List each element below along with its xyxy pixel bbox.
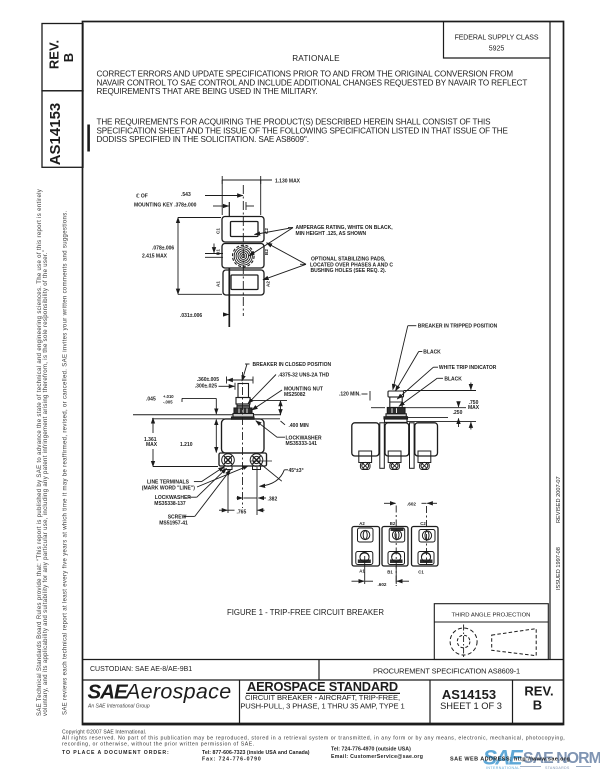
svg-text:TO PLACE A DOCUMENT ORDER:: TO PLACE A DOCUMENT ORDER: <box>62 750 170 756</box>
svg-text:B: B <box>61 53 76 62</box>
svg-text:voluntary, and its applicabili: voluntary, and its applicability and sui… <box>43 250 49 716</box>
svg-text:SAE: SAE <box>88 681 129 704</box>
svg-text:SHEET 1 OF 3: SHEET 1 OF 3 <box>440 701 502 711</box>
svg-text:AEROSPACE STANDARD: AEROSPACE STANDARD <box>247 679 398 694</box>
svg-text:C1: C1 <box>418 570 424 575</box>
svg-text:.602: .602 <box>378 582 387 587</box>
svg-text:SPECIFICATION SHEET AND THE IS: SPECIFICATION SHEET AND THE ISSUE OF THE… <box>97 126 509 135</box>
svg-text:RATIONALE: RATIONALE <box>292 54 340 63</box>
svg-text:B2: B2 <box>390 521 396 526</box>
svg-text:.078±.006: .078±.006 <box>152 246 174 252</box>
svg-text:Fax: 724-776-0790: Fax: 724-776-0790 <box>202 757 262 763</box>
svg-text:.765: .765 <box>237 510 247 516</box>
svg-text:BREAKER IN CLOSED POSITION: BREAKER IN CLOSED POSITION <box>253 362 332 368</box>
svg-text:MS35333-141: MS35333-141 <box>286 441 318 447</box>
svg-text:A2: A2 <box>266 281 271 287</box>
svg-text:.360±.005: .360±.005 <box>197 377 219 383</box>
svg-text:.400 MIN: .400 MIN <box>289 423 310 429</box>
svg-text:MAX: MAX <box>468 405 480 411</box>
svg-text:DODISS SPECIFIED IN THE SOLICI: DODISS SPECIFIED IN THE SOLICITATION. SA… <box>97 135 309 144</box>
svg-text:.120 MIN.: .120 MIN. <box>339 392 361 398</box>
svg-text:ℂ OF: ℂ OF <box>136 194 148 200</box>
svg-text:A1: A1 <box>359 569 365 574</box>
svg-text:MAX: MAX <box>146 442 158 448</box>
svg-text:MS35338-137: MS35338-137 <box>154 501 186 507</box>
svg-text:BUSHING HOLES (SEE REQ. 2).: BUSHING HOLES (SEE REQ. 2). <box>311 268 387 274</box>
svg-text:SAE reviews each technical rep: SAE reviews each technical report at lea… <box>63 210 69 715</box>
svg-text:5925: 5925 <box>489 46 505 53</box>
svg-text:REV.: REV. <box>524 684 553 699</box>
svg-text:THIRD ANGLE PROJECTION: THIRD ANGLE PROJECTION <box>452 613 531 619</box>
svg-text:MOUNTING KEY .378±.000: MOUNTING KEY .378±.000 <box>134 203 197 209</box>
svg-text:.300±.025: .300±.025 <box>195 384 217 390</box>
svg-text:Aerospace: Aerospace <box>124 680 232 704</box>
svg-text:REQUIREMENTS THAT ARE BEING US: REQUIREMENTS THAT ARE BEING USED IN THE … <box>97 87 318 96</box>
svg-text:An SAE International Group: An SAE International Group <box>87 704 150 710</box>
svg-text:1.130 MAX: 1.130 MAX <box>275 179 301 185</box>
svg-text:CORRECT ERRORS AND UPDATE SPEC: CORRECT ERRORS AND UPDATE SPECIFICATIONS… <box>97 70 514 79</box>
svg-text:.031±.006: .031±.006 <box>180 313 202 319</box>
svg-text:PROCUREMENT SPECIFICATION AS86: PROCUREMENT SPECIFICATION AS8609-1 <box>373 667 520 676</box>
svg-text:THE REQUIREMENTS FOR ACQUIRING: THE REQUIREMENTS FOR ACQUIRING THE PRODU… <box>97 118 492 127</box>
svg-text:.045: .045 <box>146 397 156 403</box>
svg-text:Tel: 877-606-7323 (inside USA: Tel: 877-606-7323 (inside USA and Canada… <box>202 750 310 756</box>
svg-text:Email: CustomerService@sae.org: Email: CustomerService@sae.org <box>331 754 423 760</box>
svg-text:SAE WEB ADDRESS: http://www.sa: SAE WEB ADDRESS: http://www.sae.org <box>450 757 570 763</box>
svg-text:recording, or otherwise, witho: recording, or otherwise, without the pri… <box>62 742 255 748</box>
svg-text:REVISED 2007-07: REVISED 2007-07 <box>556 476 562 523</box>
svg-text:.382: .382 <box>268 497 278 503</box>
svg-text:A1: A1 <box>216 281 221 287</box>
svg-text:B1: B1 <box>216 249 221 255</box>
svg-text:+.010: +.010 <box>163 394 174 399</box>
svg-text:C1: C1 <box>216 228 221 234</box>
svg-text:.543: .543 <box>181 192 191 198</box>
svg-text:PUSH-PULL, 3 PHASE, 1 THRU 35: PUSH-PULL, 3 PHASE, 1 THRU 35 AMP, TYPE … <box>240 702 404 711</box>
svg-text:REV.: REV. <box>47 40 62 69</box>
svg-text:FIGURE 1 - TRIP-FREE CIRCUIT B: FIGURE 1 - TRIP-FREE CIRCUIT BREAKER <box>227 608 384 617</box>
svg-text:2.415 MAX: 2.415 MAX <box>142 254 168 260</box>
svg-text:B: B <box>533 698 542 713</box>
svg-text:BREAKER IN TRIPPED POSITION: BREAKER IN TRIPPED POSITION <box>418 324 498 330</box>
svg-text:Copyright ©2007 SAE Internatio: Copyright ©2007 SAE International. <box>62 728 146 735</box>
svg-text:MIN HEIGHT .125, AS SHOWN: MIN HEIGHT .125, AS SHOWN <box>296 231 367 237</box>
svg-text:C2: C2 <box>420 521 426 526</box>
svg-text:STANDARDS: STANDARDS <box>545 766 570 770</box>
svg-text:(MARK WORD "LINE"): (MARK WORD "LINE") <box>142 485 195 491</box>
svg-text:MS25082: MS25082 <box>284 392 306 398</box>
svg-text:Tel: 724-776-4970 (outside USA: Tel: 724-776-4970 (outside USA) <box>331 747 411 753</box>
svg-text:A2: A2 <box>359 521 365 526</box>
svg-text:NAVAIR CONTROL TO SAE CONTROL: NAVAIR CONTROL TO SAE CONTROL AND INCLUD… <box>97 78 528 87</box>
svg-text:B2: B2 <box>264 249 269 255</box>
svg-text:INTERNATIONAL.: INTERNATIONAL. <box>486 766 521 770</box>
svg-text:BLACK: BLACK <box>423 350 441 356</box>
svg-text:BLACK: BLACK <box>444 376 462 382</box>
svg-text:45°±3°: 45°±3° <box>289 468 304 474</box>
svg-text:-.005: -.005 <box>163 400 173 405</box>
svg-text:.250: .250 <box>453 410 463 416</box>
svg-text:1.210: 1.210 <box>180 442 193 448</box>
svg-text:CUSTODIAN: SAE AE-8/AE-9B1: CUSTODIAN: SAE AE-8/AE-9B1 <box>90 666 192 673</box>
svg-text:AS14153: AS14153 <box>442 687 496 702</box>
svg-text:ISSUED 1997-08: ISSUED 1997-08 <box>556 547 562 590</box>
svg-text:B1: B1 <box>387 570 393 575</box>
svg-text:MS51957-41: MS51957-41 <box>159 520 188 526</box>
svg-text:.602: .602 <box>407 501 416 506</box>
svg-text:AS14153: AS14153 <box>47 103 64 166</box>
svg-text:.4375-32 UNS-2A THD: .4375-32 UNS-2A THD <box>278 373 330 379</box>
svg-text:FEDERAL SUPPLY CLASS: FEDERAL SUPPLY CLASS <box>455 35 539 42</box>
svg-text:WHITE TRIP INDICATOR: WHITE TRIP INDICATOR <box>439 365 497 371</box>
